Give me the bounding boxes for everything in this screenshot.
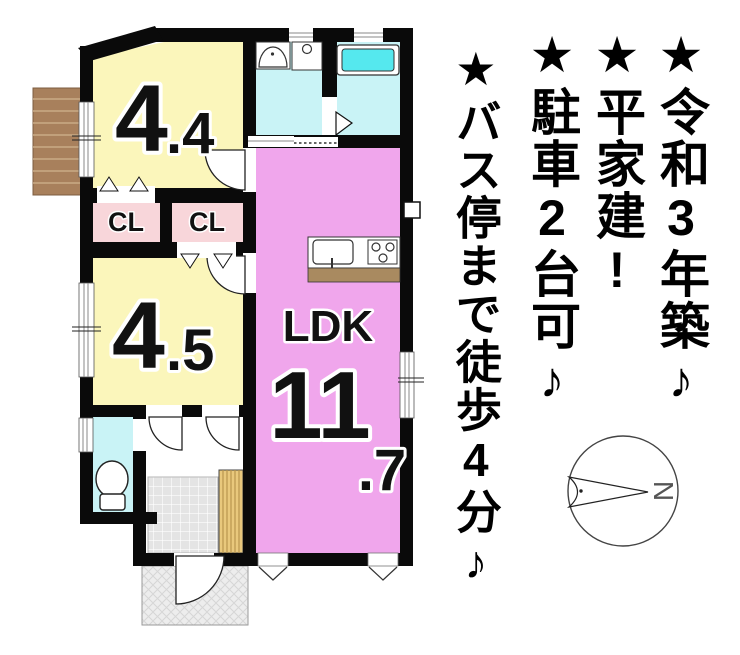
ldk-label: LDK [283, 302, 374, 351]
ldk-size-dec: .7 [358, 438, 406, 503]
accordion-door [294, 137, 338, 147]
wood-deck [33, 88, 85, 195]
room-4-5-label-num: 4 [112, 283, 165, 389]
top-window-2 [354, 28, 383, 42]
room-4-4-label-num: 4 [115, 66, 168, 172]
top-window-1 [289, 28, 313, 42]
compass-north-label: N [648, 481, 679, 501]
room-4-4-label-dec: .4 [166, 101, 214, 166]
washroom-sink [256, 42, 290, 69]
ldk-right-window [398, 352, 424, 418]
genkan-tile [148, 477, 218, 553]
room-4-5-label-dec: .5 [166, 318, 214, 383]
washroom-ldk-opening [248, 136, 294, 147]
note-single-story: ★平家建! [591, 26, 643, 300]
ldk-bottom-window-2 [368, 553, 398, 580]
toilet-fixture [96, 461, 128, 510]
note-bus-stop: ★バス停まで徒歩4分♪ [451, 42, 499, 590]
washing-machine-pan [292, 42, 322, 70]
ldk-bottom-window-1 [258, 553, 288, 580]
bathtub [337, 45, 399, 75]
right-vent-window [404, 202, 420, 218]
note-built-year: ★令和3年築♪ [655, 26, 707, 410]
floor-plan-page: 4 .4 4 .5 CL CL LDK 11 .7 N ★令和3年築♪ ★平家建… [0, 0, 740, 655]
closet-2-label: CL [189, 207, 225, 237]
compass: N [568, 436, 679, 546]
ldk-size-num: 11 [269, 352, 370, 459]
entry-wood-step [219, 470, 243, 553]
stove [368, 240, 397, 264]
kitchen-counter [308, 237, 400, 282]
door-hall-right [202, 405, 239, 450]
toilet-window [79, 418, 93, 452]
note-parking: ★駐車2台可♪ [526, 26, 578, 410]
closet-1-label: CL [108, 207, 144, 237]
